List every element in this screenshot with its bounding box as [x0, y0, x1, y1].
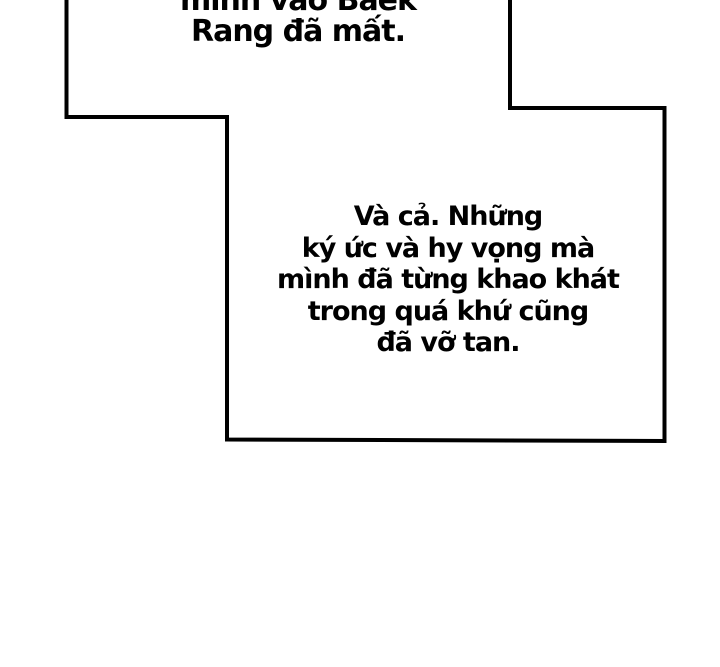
caption-main-line-2: ký ức và hy vọng mà — [273, 233, 623, 265]
caption-main-line-1: Và cả. Những — [273, 201, 623, 233]
caption-top: mình vào Baek Rang đã mất. — [148, 0, 448, 47]
caption-top-line-2: Rang đã mất. — [148, 16, 448, 47]
comic-page: mình vào Baek Rang đã mất. Và cả. Những … — [0, 0, 720, 667]
caption-main-line-4: trong quá khứ cũng — [273, 296, 623, 328]
caption-main-line-5: đã vỡ tan. — [273, 327, 623, 359]
caption-main-line-3: mình đã từng khao khát — [273, 264, 623, 296]
caption-main: Và cả. Những ký ức và hy vọng mà mình đã… — [273, 201, 623, 359]
